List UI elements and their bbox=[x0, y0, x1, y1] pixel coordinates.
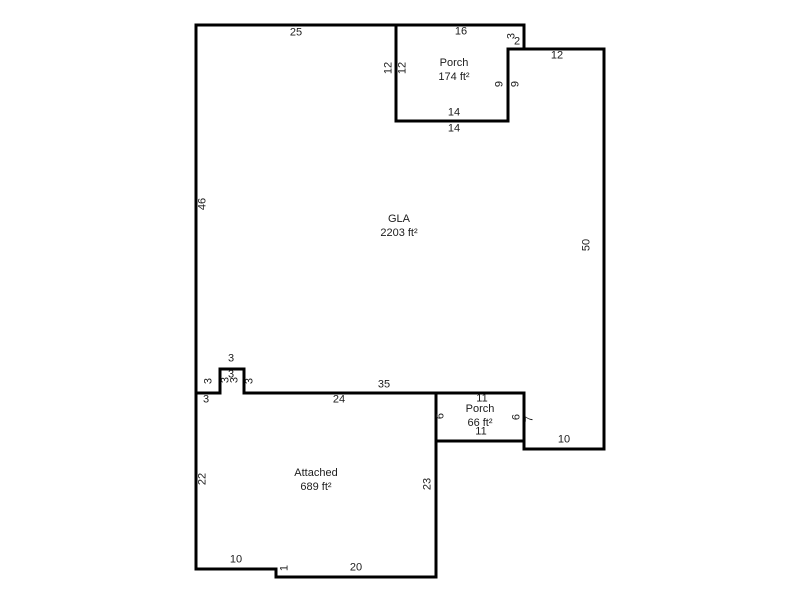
area-size: 174 ft² bbox=[438, 70, 469, 84]
dimension-label: 3 bbox=[230, 377, 241, 383]
dimension-label: 6 bbox=[436, 413, 447, 419]
gla-label: GLA 2203 ft² bbox=[380, 212, 417, 240]
dimension-label: 50 bbox=[582, 239, 593, 251]
dimension-label: 25 bbox=[290, 28, 302, 39]
dimension-label: 3 bbox=[228, 354, 234, 365]
dimension-label: 3 bbox=[245, 378, 256, 384]
dimension-label: 12 bbox=[398, 62, 409, 74]
area-size: 2203 ft² bbox=[380, 226, 417, 240]
dimension-label: 11 bbox=[475, 427, 486, 438]
attached-garage-label: Attached 689 ft² bbox=[294, 466, 337, 494]
dimension-label: 22 bbox=[198, 473, 209, 485]
dimension-label: 11 bbox=[476, 394, 487, 405]
dimension-label: 3 bbox=[203, 395, 209, 406]
dimension-label: 16 bbox=[455, 27, 467, 38]
dimension-label: 35 bbox=[378, 380, 390, 391]
dimension-label: 12 bbox=[384, 62, 395, 74]
area-name: Porch bbox=[438, 56, 469, 70]
area-size: 689 ft² bbox=[294, 480, 337, 494]
dimension-label: 12 bbox=[551, 51, 563, 62]
dimension-label: 10 bbox=[230, 555, 242, 566]
dimension-label: 14 bbox=[448, 124, 460, 135]
dimension-label: 6 bbox=[512, 414, 523, 420]
area-name: Attached bbox=[294, 466, 337, 480]
dimension-label: 14 bbox=[448, 108, 460, 119]
floorplan-sketch: GLA 2203 ft² Porch 174 ft² Porch 66 ft² … bbox=[0, 0, 800, 600]
porch-top-label: Porch 174 ft² bbox=[438, 56, 469, 84]
dimension-label: 9 bbox=[495, 81, 506, 87]
dimension-label: 9 bbox=[511, 81, 522, 87]
dimension-label: 24 bbox=[333, 395, 345, 406]
dimension-label: 2 bbox=[514, 37, 520, 48]
dimension-label: 3 bbox=[204, 378, 215, 384]
floorplan-walls bbox=[0, 0, 800, 600]
area-name: GLA bbox=[380, 212, 417, 226]
dimension-label: 7 bbox=[525, 416, 536, 422]
dimension-label: 1 bbox=[280, 565, 291, 571]
dimension-label: 23 bbox=[423, 478, 434, 490]
dimension-label: 46 bbox=[198, 198, 209, 210]
dimension-label: 20 bbox=[350, 563, 362, 574]
dimension-label: 10 bbox=[558, 435, 570, 446]
